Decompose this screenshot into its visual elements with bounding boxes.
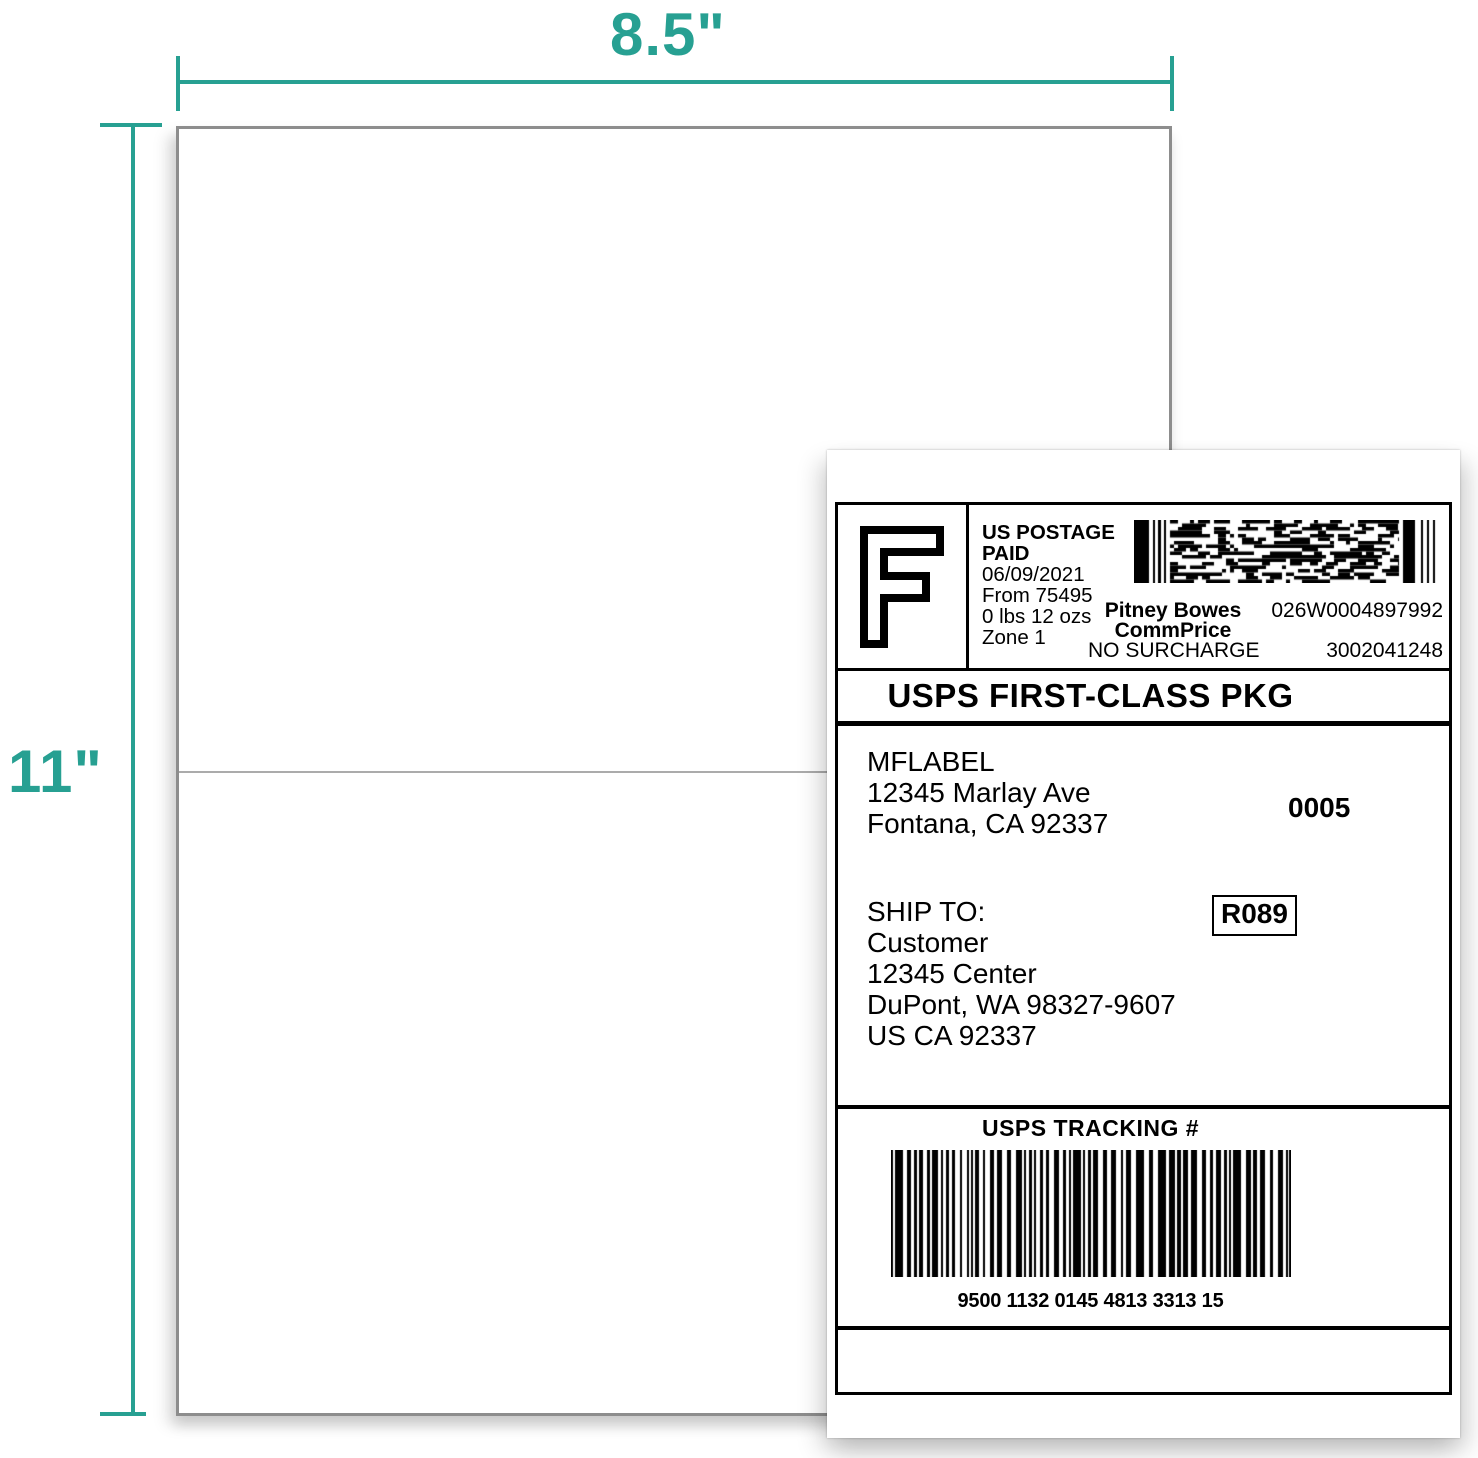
dimension-tbar-top <box>100 123 162 127</box>
postage-date: 06/09/2021 <box>982 564 1115 585</box>
tracking-footer-divider <box>838 1326 1449 1330</box>
dimension-tick-right <box>1170 56 1174 111</box>
dimension-tbar-bottom <box>100 1412 146 1416</box>
meter-carrier: Pitney Bowes <box>1088 601 1258 621</box>
paper-height-dimension-line <box>131 125 135 1416</box>
tracking-barcode <box>891 1150 1291 1277</box>
meter-row: CommPrice <box>1088 621 1443 641</box>
ship-to-address: Customer 12345 Center DuPont, WA 98327-9… <box>867 927 1176 1051</box>
meter-serial-number: 3002041248 <box>1258 641 1443 661</box>
return-name: MFLABEL <box>867 746 1108 777</box>
paper-height-dimension-label: 11" <box>8 737 103 806</box>
return-city: Fontana, CA 92337 <box>867 808 1108 839</box>
ship-to-name: Customer <box>867 927 1176 958</box>
meter-blank <box>1258 621 1443 641</box>
ship-to-country: US CA 92337 <box>867 1020 1176 1051</box>
ship-to-street: 12345 Center <box>867 958 1176 989</box>
postage-rate-mark-f-icon <box>858 524 946 650</box>
tracking-number: 9500 1132 0145 4813 3313 15 <box>838 1288 1343 1314</box>
meter-info: Pitney Bowes 026W0004897992 CommPrice NO… <box>1088 601 1443 661</box>
return-street: 12345 Marlay Ave <box>867 777 1108 808</box>
meter-number: 026W0004897992 <box>1258 601 1443 621</box>
ship-to-city: DuPont, WA 98327-9607 <box>867 989 1176 1020</box>
ship-to-heading: SHIP TO: <box>867 896 985 928</box>
meter-row: Pitney Bowes 026W0004897992 <box>1088 601 1443 621</box>
dimension-tick-left <box>176 56 180 111</box>
batch-number: 0005 <box>1288 792 1350 824</box>
postage-paid-line1: US POSTAGE <box>982 522 1115 543</box>
tracking-block: USPS TRACKING # 9500 1132 0145 4813 3313… <box>838 1115 1343 1314</box>
paper-width-dimension-label: 8.5" <box>610 0 726 69</box>
meter-row: NO SURCHARGE 3002041248 <box>1088 641 1443 661</box>
paper-width-dimension-line <box>178 80 1172 84</box>
postage-section: US POSTAGE PAID 06/09/2021 From 75495 0 … <box>838 505 1449 671</box>
postage-2d-barcode <box>1134 520 1437 583</box>
shipping-label-sample: US POSTAGE PAID 06/09/2021 From 75495 0 … <box>827 450 1460 1438</box>
product-diagram: 8.5" 8.5" 5.5" 11" US PO <box>0 0 1478 1458</box>
tracking-heading: USPS TRACKING # <box>838 1115 1343 1141</box>
address-section: MFLABEL 12345 Marlay Ave Fontana, CA 923… <box>838 726 1449 1109</box>
service-class-banner: USPS FIRST-CLASS PKG <box>838 671 1449 726</box>
meter-rate-program: CommPrice <box>1088 621 1258 641</box>
tracking-section: USPS TRACKING # 9500 1132 0145 4813 3313… <box>838 1115 1449 1398</box>
shipping-label-border: US POSTAGE PAID 06/09/2021 From 75495 0 … <box>835 502 1452 1395</box>
return-address: MFLABEL 12345 Marlay Ave Fontana, CA 923… <box>867 746 1108 839</box>
postage-paid-line2: PAID <box>982 543 1115 564</box>
route-code-box: R089 <box>1212 895 1297 936</box>
postage-rate-mark-box <box>838 505 969 668</box>
meter-surcharge: NO SURCHARGE <box>1088 641 1258 661</box>
